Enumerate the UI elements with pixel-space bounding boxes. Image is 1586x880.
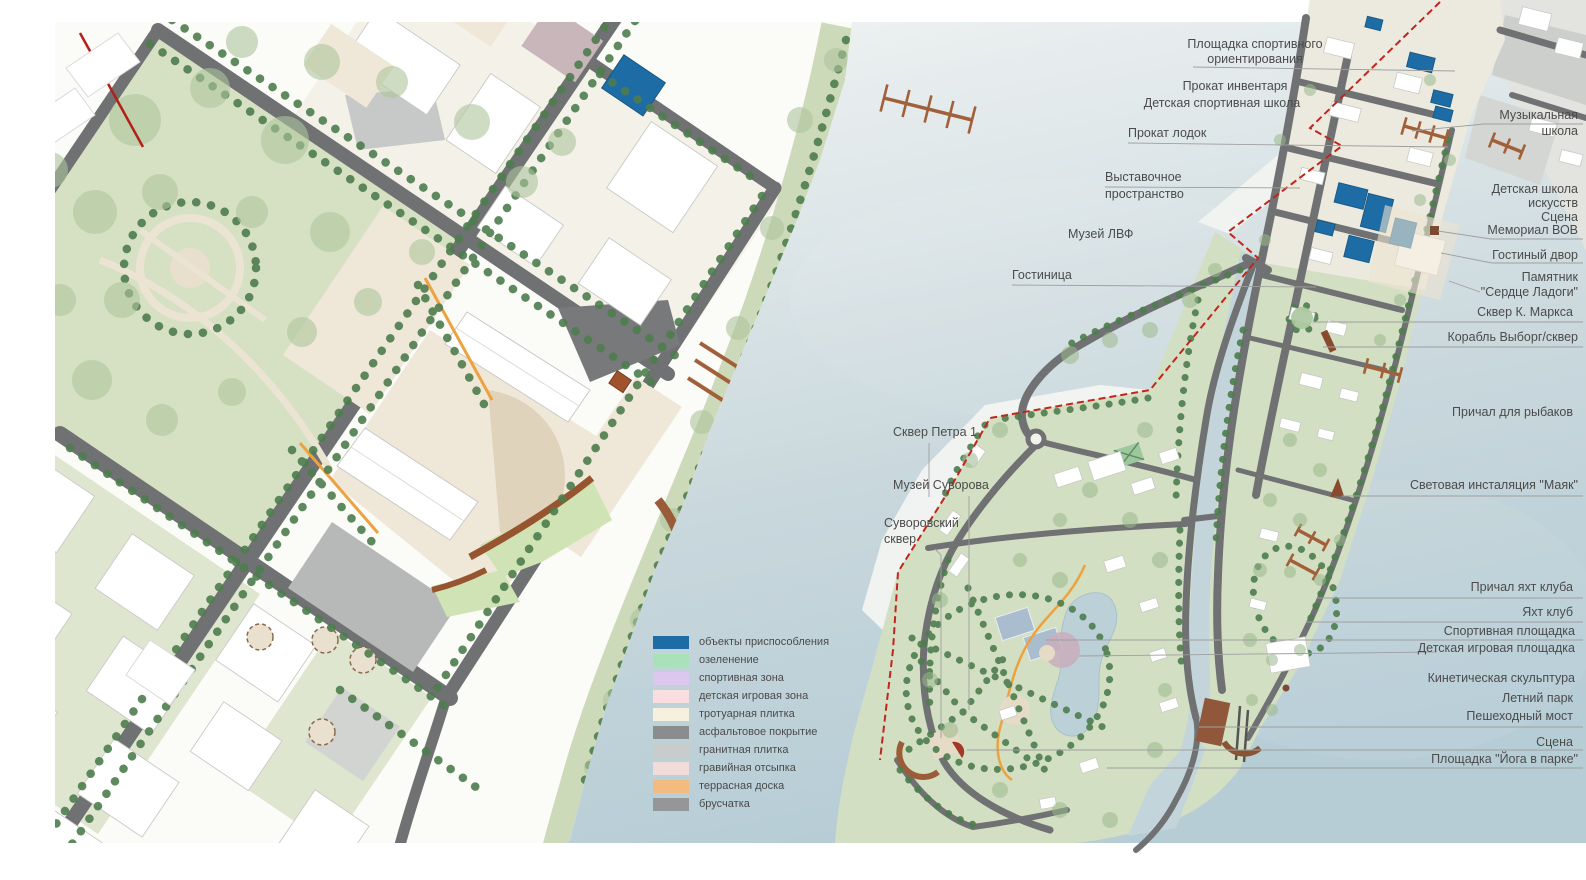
label-boat-rental: Прокат лодок — [1128, 126, 1207, 140]
legend-swatch — [653, 744, 689, 757]
legend-swatch — [653, 708, 689, 721]
label-playground: Детская игровая площадка — [1418, 641, 1575, 655]
legend-label: террасная доска — [699, 780, 784, 793]
label-summer-park: Летний парк — [1502, 691, 1573, 705]
label-fishermen-pier: Причал для рыбаков — [1452, 405, 1573, 419]
label-equipment-rental: Прокат инвентаря — [1183, 79, 1288, 93]
label-suvorov-museum: Музей Суворова — [893, 478, 989, 492]
legend-label: асфальтовое покрытие — [699, 726, 817, 739]
label-memorial: Мемориал ВОВ — [1487, 223, 1578, 237]
legend-item: озеленение — [653, 654, 883, 667]
label-orienteering: Площадка спортивногоориентирования — [1187, 37, 1322, 66]
label-sport-school: Детская спортивная школа — [1144, 96, 1300, 110]
label-peter-square: Сквер Петра 1 — [893, 425, 977, 439]
legend-label: спортивная зона — [699, 672, 784, 685]
label-yacht-pier: Причал яхт клуба — [1471, 580, 1573, 594]
label-sports-ground: Спортивная площадка — [1444, 624, 1575, 638]
building — [0, 672, 57, 768]
legend-swatch — [653, 636, 689, 649]
legend-item: террасная доска — [653, 780, 883, 793]
label-gostiny-dvor: Гостиный двор — [1492, 248, 1578, 262]
legend-swatch — [653, 726, 689, 739]
kinetic-sculpture-icon — [1283, 685, 1290, 692]
roundabout — [1028, 431, 1044, 447]
legend-label: гравийная отсыпка — [699, 762, 796, 775]
legend: объекты приспособления озеленение спорти… — [653, 636, 883, 816]
label-kinetic-sculpture: Кинетическая скульптура — [1428, 671, 1575, 685]
label-stage: Сцена — [1536, 735, 1573, 749]
map-canvas: Площадка спортивногоориентирования Прока… — [0, 0, 1586, 880]
label-yoga-ground: Площадка "Йога в парке" — [1431, 751, 1578, 766]
legend-swatch — [653, 780, 689, 793]
legend-item: спортивная зона — [653, 672, 883, 685]
label-vyborg-ship: Корабль Выборг/сквер — [1447, 330, 1578, 344]
legend-item: гранитная плитка — [653, 744, 883, 757]
legend-swatch — [653, 672, 689, 685]
label-lvf-museum: Музей ЛВФ — [1068, 227, 1133, 241]
legend-label: детская игровая зона — [699, 690, 808, 703]
legend-swatch — [653, 690, 689, 703]
legend-item: гравийная отсыпка — [653, 762, 883, 775]
label-pedestrian-bridge: Пешеходный мост — [1466, 709, 1573, 723]
legend-label: озеленение — [699, 654, 759, 667]
legend-item: асфальтовое покрытие — [653, 726, 883, 739]
legend-swatch — [653, 762, 689, 775]
legend-swatch — [653, 798, 689, 811]
legend-swatch — [653, 654, 689, 667]
legend-label: брусчатка — [699, 798, 750, 811]
memorial-icon — [1430, 226, 1439, 235]
legend-item: детская игровая зона — [653, 690, 883, 703]
building — [109, 862, 198, 880]
label-hotel: Гостиница — [1012, 268, 1072, 282]
legend-item: объекты приспособления — [653, 636, 883, 649]
label-yacht-club: Яхт клуб — [1522, 605, 1573, 619]
label-lighthouse: Световая инсталяция "Маяк" — [1410, 478, 1578, 492]
label-marx-square: Сквер К. Маркса — [1477, 305, 1573, 319]
legend-label: объекты приспособления — [699, 636, 829, 649]
legend-item: брусчатка — [653, 798, 883, 811]
legend-label: гранитная плитка — [699, 744, 788, 757]
legend-label: тротуарная плитка — [699, 708, 795, 721]
legend-item: тротуарная плитка — [653, 708, 883, 721]
